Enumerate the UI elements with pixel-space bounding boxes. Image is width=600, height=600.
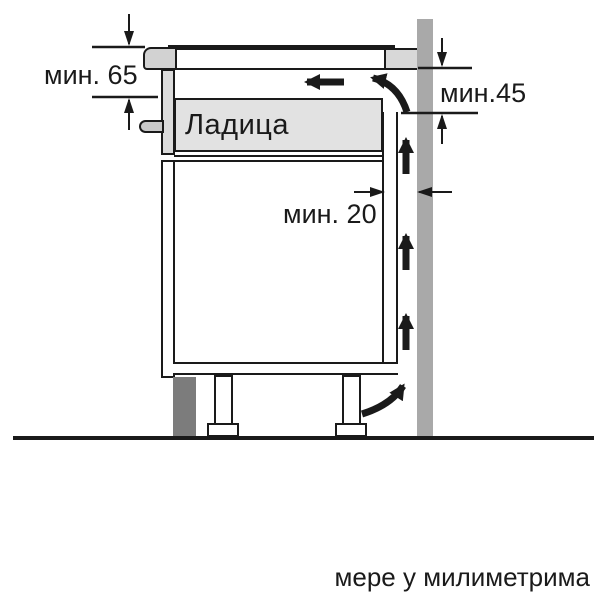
dim-label-min45: мин.45: [440, 78, 526, 109]
wall: [417, 19, 433, 437]
bottom-shelf: [173, 362, 398, 375]
worktop-end-segment: [384, 50, 417, 68]
installation-diagram: Ладица: [0, 0, 600, 600]
front-panel-lower: [161, 160, 175, 378]
hob-trim-cap: [143, 47, 177, 70]
rear-panel: [382, 112, 398, 375]
front-leg-stem: [214, 375, 233, 425]
drawer-label: Ладица: [176, 109, 289, 142]
front-panel-upper: [161, 69, 175, 155]
plinth: [173, 377, 196, 437]
dim-label-min65: мин. 65: [44, 60, 138, 91]
drawer-box: Ладица: [174, 98, 383, 152]
drawer-handle: [139, 120, 164, 133]
front-leg-foot: [207, 423, 239, 437]
dim-label-min20: мин. 20: [283, 199, 377, 230]
hob-glass-line: [168, 45, 395, 49]
units-caption: мере у милиметрима: [300, 562, 590, 593]
floor-line: [13, 436, 594, 440]
rear-leg-foot: [335, 423, 367, 437]
airflow-curve-bottom: [362, 386, 403, 414]
rear-leg-stem: [342, 375, 361, 425]
under-drawer-shelf: [174, 155, 383, 162]
worktop: [175, 48, 417, 70]
